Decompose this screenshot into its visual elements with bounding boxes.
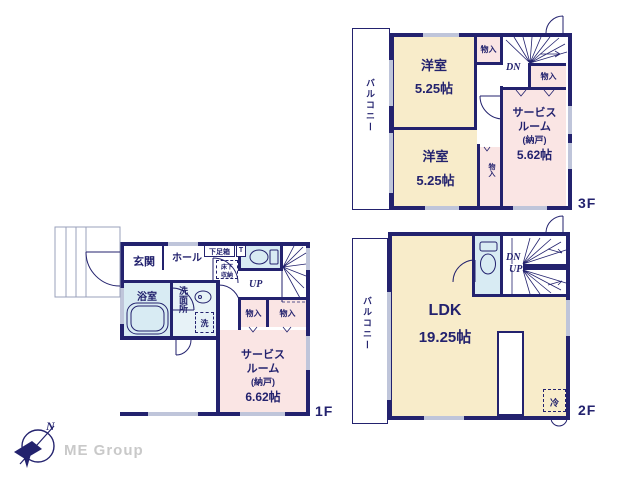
door-arc-1f-service <box>219 285 240 306</box>
room-size: 5.25帖 <box>394 78 474 97</box>
floor-label-1f: 1F <box>315 403 333 419</box>
shoebox-t-label: T <box>236 247 246 254</box>
room-name: 洋室 <box>394 146 477 165</box>
service-room-line: 6.62帖 <box>220 388 306 405</box>
stairs-dn-label-2f: DN <box>506 252 520 263</box>
kitchen-counter-2f <box>497 331 524 416</box>
stairs-up-label-2f: UP <box>509 264 522 275</box>
stairs-dn-label-3f: DN <box>506 62 520 73</box>
washroom-label: 洗面所 <box>177 286 190 313</box>
door-arc-1f-exterior <box>176 340 191 355</box>
bath-label: 浴室 <box>124 288 170 303</box>
floor-label-3f: 3F <box>578 195 596 211</box>
door-mark-2f-bottom <box>551 418 567 426</box>
underfloor-line: 収納 <box>216 270 238 279</box>
door-arc-3f-top <box>546 16 563 33</box>
bathtub-1f <box>127 303 168 334</box>
door-arc-3f-service <box>480 96 503 119</box>
door-arc-2f-top <box>546 216 563 232</box>
service-room-line: (納戸) <box>503 133 566 146</box>
closet-label: 物入 <box>477 44 500 55</box>
balcony-label-2f: バルコニー <box>361 296 374 351</box>
balcony-label-3f: バルコニー <box>364 78 377 133</box>
stairs-up-label-1f: UP <box>249 279 262 290</box>
closet-label: 物入 <box>241 308 266 319</box>
closet-label: 物入 <box>531 71 566 82</box>
toilet-fixture-1f <box>250 250 278 264</box>
shoebox-label: 下足箱 <box>204 247 235 257</box>
service-room-line: ルーム <box>503 118 566 134</box>
floor-label-2f: 2F <box>578 402 596 418</box>
room-name: 洋室 <box>394 55 474 74</box>
service-room-line: ルーム <box>220 360 306 376</box>
toilet-fixture-2f <box>480 242 497 274</box>
fridge-label: 冷 <box>543 396 566 409</box>
service-room-line: (納戸) <box>220 375 306 388</box>
washer-label: 洗 <box>195 318 214 329</box>
closet-label: 物入 <box>486 163 496 177</box>
stairs-1f <box>282 246 306 302</box>
compass-north-label: N <box>45 419 56 433</box>
closet-label: 物入 <box>269 308 306 319</box>
door-arc-1f-entrance <box>86 252 120 286</box>
compass-icon: N <box>14 419 56 468</box>
floorplan-canvas: バルコニー 洋室 5.25帖 洋室 5.25帖 物入 物入 物入 DN サービス… <box>0 0 640 480</box>
company-logo-text: ME Group <box>64 442 144 459</box>
chevron <box>249 327 291 332</box>
service-room-line: 5.62帖 <box>503 146 566 163</box>
ldk-size: 19.25帖 <box>390 326 500 347</box>
basin-1f <box>195 291 211 303</box>
stairs-3f <box>506 37 567 63</box>
door-arc-2f-toilet <box>453 260 475 282</box>
room-size: 5.25帖 <box>394 170 477 189</box>
ldk-name: LDK <box>395 302 495 320</box>
hall-label: ホール <box>166 249 208 264</box>
genkan-label: 玄関 <box>124 253 164 269</box>
